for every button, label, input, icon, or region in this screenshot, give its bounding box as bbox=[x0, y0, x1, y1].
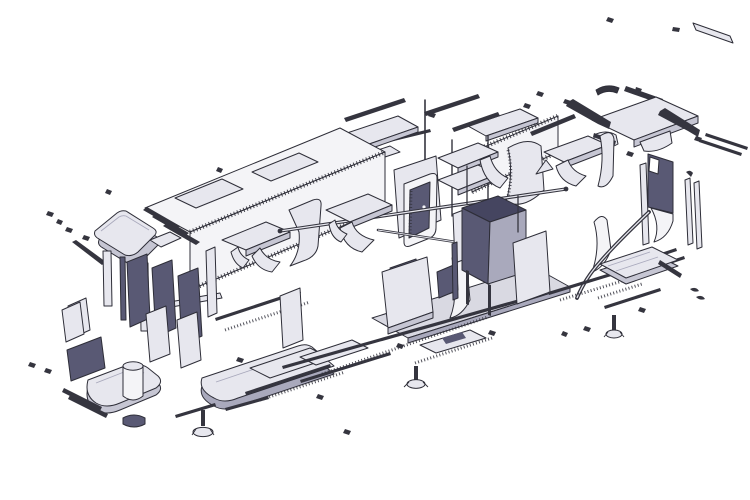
vertical-strip bbox=[694, 181, 702, 249]
vertical-strip bbox=[685, 178, 693, 245]
box-leg bbox=[466, 270, 469, 305]
assembly-drawing-canvas bbox=[0, 0, 750, 500]
leveling-foot bbox=[192, 410, 214, 437]
door-panel-light bbox=[146, 306, 170, 362]
leveling-foot bbox=[404, 366, 428, 388]
curved-bracket bbox=[596, 86, 619, 95]
support-post bbox=[120, 257, 126, 320]
left-small-panels bbox=[62, 298, 105, 381]
exploded-view-diagram bbox=[0, 0, 750, 500]
standing-panel bbox=[280, 288, 303, 348]
leveling-foot bbox=[604, 315, 624, 338]
box-leg bbox=[488, 284, 491, 316]
curved-sheet bbox=[598, 133, 614, 187]
dark-door-panels-left bbox=[127, 254, 202, 368]
top-right-roof-panel-assembly bbox=[566, 17, 748, 156]
flared-skirt bbox=[651, 208, 673, 242]
standing-panel bbox=[513, 231, 550, 304]
right-door-panel bbox=[640, 154, 673, 245]
right-floor bbox=[548, 247, 705, 338]
dark-panel-board bbox=[67, 337, 105, 381]
cylindrical-tank bbox=[123, 366, 143, 400]
door-window bbox=[649, 157, 659, 174]
rail-arrow bbox=[566, 99, 611, 129]
pillar-strip bbox=[206, 247, 217, 317]
door-panel-light bbox=[177, 312, 201, 368]
support-post bbox=[103, 251, 112, 306]
dark-tray bbox=[123, 415, 145, 427]
